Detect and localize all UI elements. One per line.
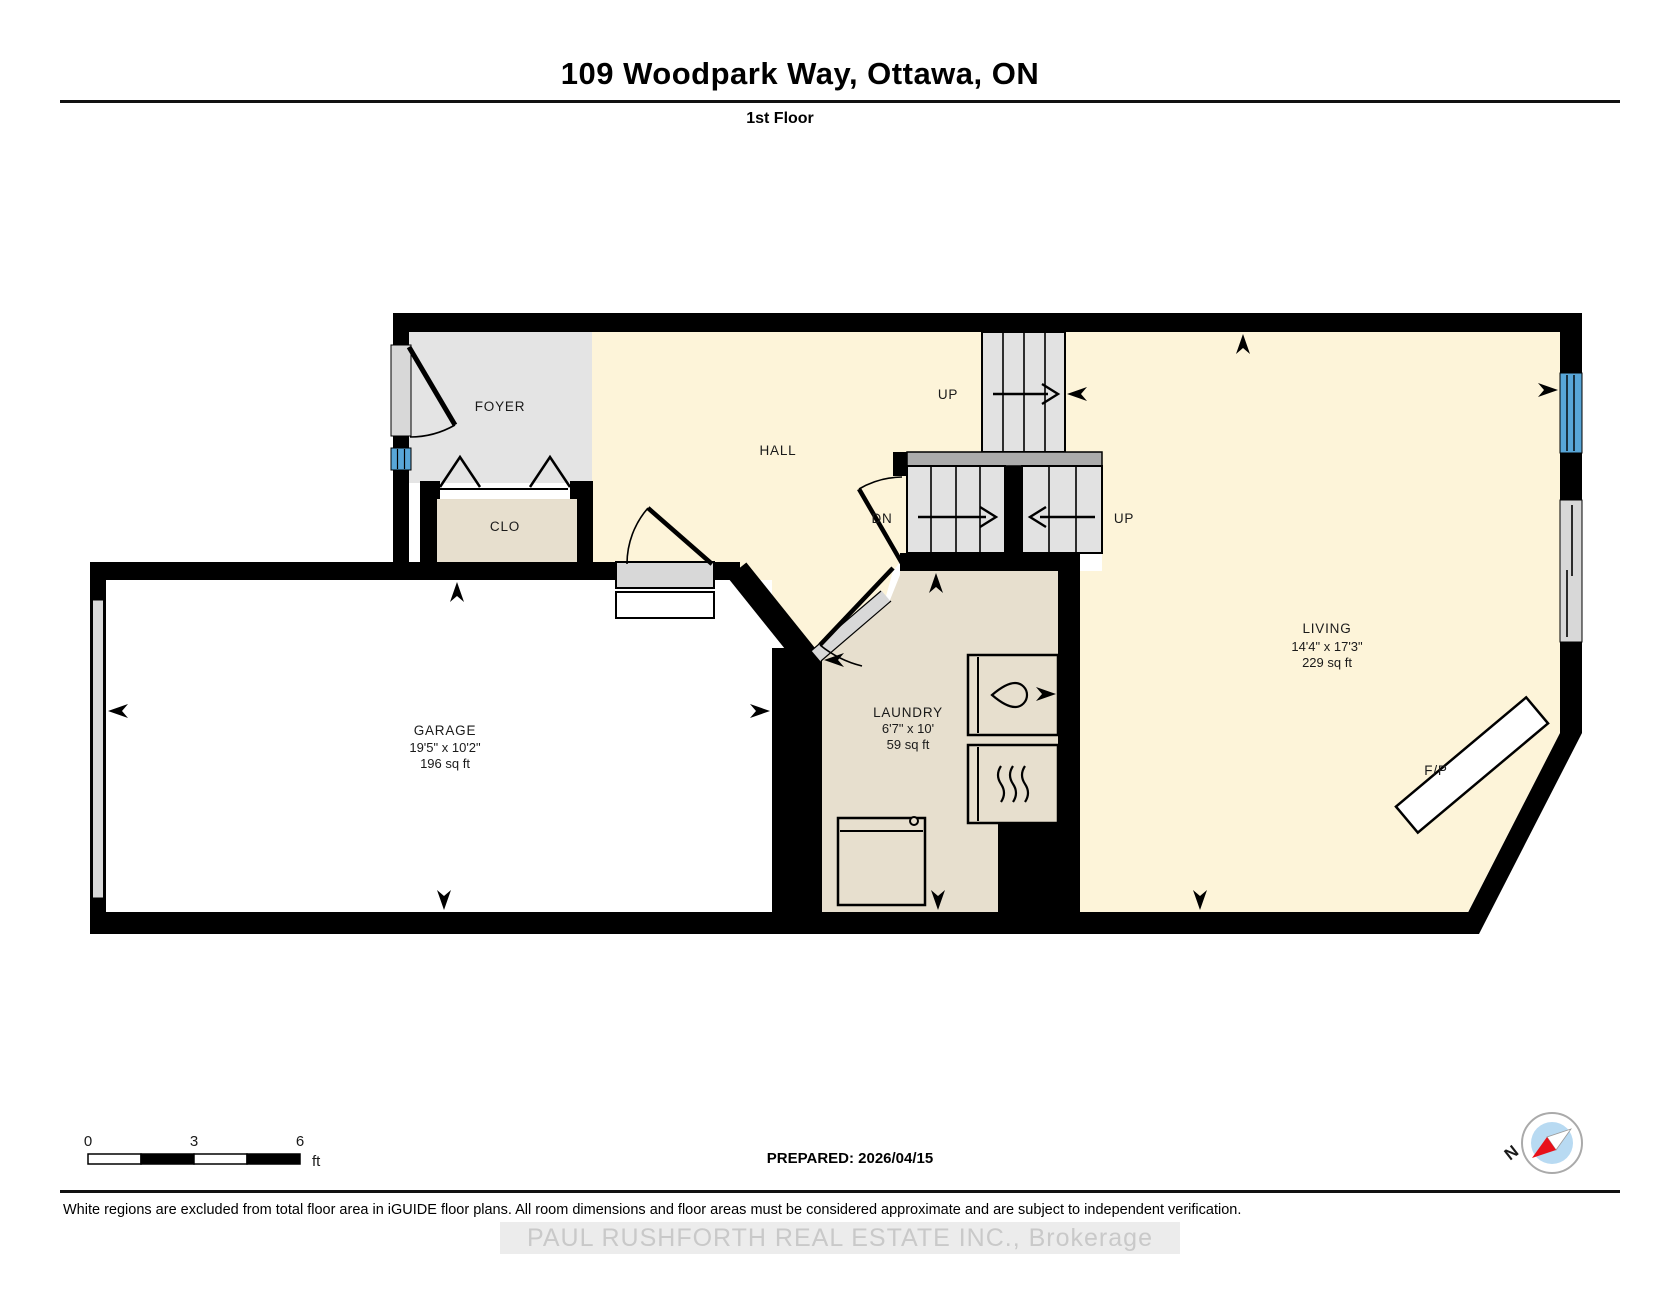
garage-dimensions: 19'5" x 10'2" — [409, 740, 481, 755]
prepared-date: PREPARED: 2026/04/15 — [600, 1150, 1100, 1167]
laundry-dimensions: 6'7" x 10' — [882, 721, 934, 736]
closet-label: CLO — [490, 519, 520, 534]
scale-unit: ft — [312, 1153, 321, 1170]
living-dimensions: 14'4" x 17'3" — [1291, 639, 1363, 654]
scale-bar: 0 3 6 ft — [84, 1133, 321, 1170]
foyer-window — [391, 448, 411, 470]
garage-label: GARAGE — [414, 723, 477, 738]
footer-divider-line — [60, 1190, 1620, 1193]
stairs-up-right — [1022, 466, 1102, 553]
brokerage-watermark: PAUL RUSHFORTH REAL ESTATE INC., Brokera… — [500, 1222, 1180, 1254]
living-label: LIVING — [1302, 621, 1351, 636]
stairs-landing — [907, 452, 1102, 466]
garage-area: 196 sq ft — [420, 756, 470, 771]
stairs-up-right-label: UP — [1114, 511, 1134, 526]
disclaimer-text: White regions are excluded from total fl… — [63, 1202, 1463, 1218]
stairs-down-label: DN — [871, 511, 892, 526]
laundry-label: LAUNDRY — [873, 705, 943, 720]
fireplace-label: F/P — [1424, 763, 1447, 778]
hall-label: HALL — [760, 443, 797, 458]
dryer-icon — [968, 745, 1058, 823]
scale-mid: 3 — [190, 1133, 198, 1150]
foyer-label: FOYER — [475, 399, 526, 414]
floor-plan: FOYER HALL CLO GARAGE 19'5" x 10'2" 196 … — [0, 0, 1680, 1299]
living-sliding-door — [1560, 500, 1582, 642]
compass-north-label: N — [1501, 1142, 1522, 1165]
scale-start: 0 — [84, 1133, 92, 1150]
floor-plan-page: { "header": { "title": "109 Woodpark Way… — [0, 0, 1680, 1299]
laundry-tub-icon — [838, 817, 925, 905]
garage-door — [93, 600, 104, 898]
laundry-area: 59 sq ft — [887, 737, 930, 752]
compass-icon: N — [1501, 1113, 1582, 1173]
stairs-up-top — [982, 332, 1065, 452]
scale-end: 6 — [296, 1133, 304, 1150]
stairs-down — [907, 466, 1005, 553]
stairs-up-top-label: UP — [938, 387, 958, 402]
living-window — [1560, 373, 1582, 453]
living-area: 229 sq ft — [1302, 655, 1352, 670]
